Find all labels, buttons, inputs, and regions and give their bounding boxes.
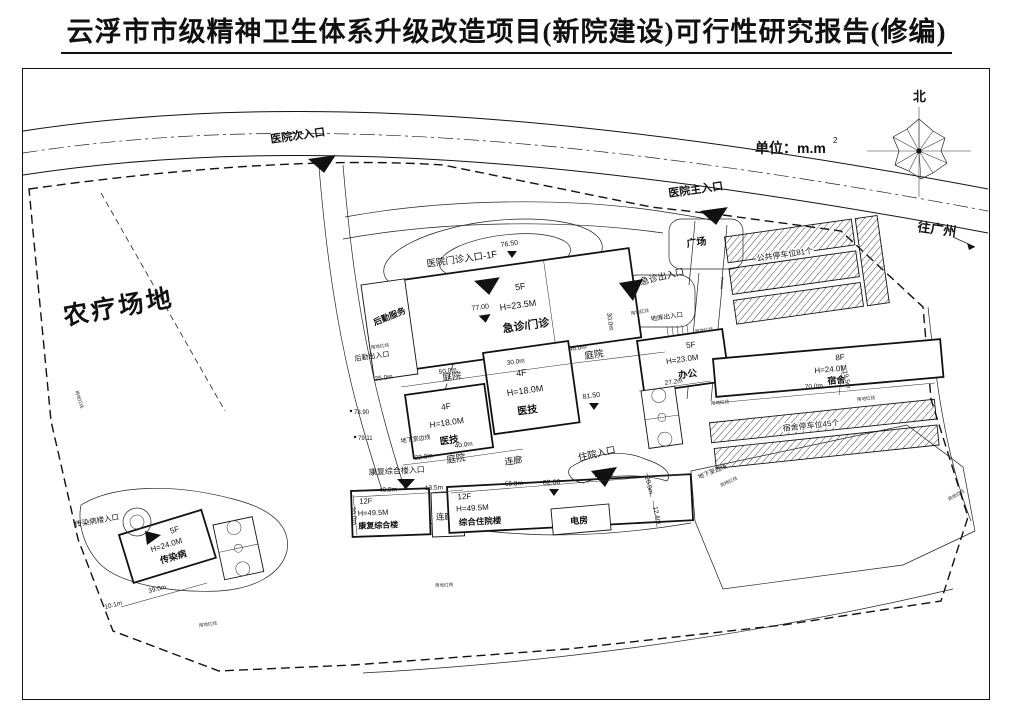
dim-13-5m: 13.5m (425, 484, 443, 492)
building-medtech-left-floors: 4F (440, 401, 451, 412)
unit-note: 单位：m.m 2 (755, 136, 838, 156)
entrance-secondary-arrow (308, 155, 338, 175)
entrance-emergency-label: 急诊出入口 (639, 265, 685, 287)
dim-25m: 25.0m (374, 374, 393, 383)
dim-65-8m: 65.8m (505, 480, 523, 488)
basketball-court-east (641, 386, 683, 448)
elevation-7911: 79.11 (358, 436, 373, 442)
to-guangzhou: 往广州 (917, 219, 975, 250)
plaza-label: 广场 (686, 234, 708, 250)
elevation-7650-marker (507, 251, 517, 258)
building-medtech-right: 4F H=18.0M 医技 (483, 341, 580, 434)
building-rehab-floors: 12F (359, 496, 373, 505)
elevation-7650: 76.50 (500, 240, 518, 249)
elevation-8150-marker (589, 403, 599, 410)
building-dorm-floors: 8F (835, 353, 845, 363)
elevation-7890: 78.90 (354, 410, 370, 416)
entrance-secondary: 医院次入口 (269, 124, 338, 174)
entrance-rehab: 康复综合楼入口 (369, 464, 425, 489)
title-bar: 云浮市市级精神卫生体系升级改造项目(新院建设)可行性研究报告(修编) (0, 10, 1013, 54)
dim-70m: 70.0m (805, 382, 824, 391)
basement-entrance-label: 地库出入口 (650, 310, 683, 323)
north-label: 北 (913, 89, 926, 104)
building-rehab: 12F H=49.5M 康复综合楼 (351, 488, 431, 537)
boundary-note-9: 用地红线 (73, 389, 85, 409)
entrance-secondary-label: 医院次入口 (269, 124, 325, 146)
unit-exponent: 2 (833, 136, 838, 145)
dim-22m: 22.0m (414, 453, 433, 462)
building-rehab-height: H=49.5M (358, 508, 389, 518)
entrance-rehab-arrow (397, 479, 415, 489)
entrance-rehab-label: 康复综合楼入口 (369, 464, 425, 477)
building-medtech-right-floors: 4F (515, 367, 527, 378)
north-compass: 北 (867, 89, 971, 197)
building-rehab-name: 康复综合楼 (358, 519, 398, 530)
dim-39m: 39.0m (148, 584, 167, 595)
corridor-label-2: 连廊 (504, 454, 523, 467)
dim-48-5m: 48.5m (595, 472, 613, 480)
power-room-label: 电房 (570, 514, 589, 527)
compass-center (916, 148, 921, 153)
dorm-parking (710, 399, 940, 468)
dim-20m-a: 20.0m (349, 506, 358, 525)
farm-area-label: 农疗场地 (60, 283, 176, 331)
boundary-note-8: 用地红线 (856, 394, 875, 403)
building-emergency-floors: 5F (514, 281, 526, 292)
boundary-note-6: 用地红线 (198, 619, 218, 629)
main-road (23, 111, 988, 233)
building-dorm: 8F H=24.0M 宿舍 (713, 339, 943, 397)
to-guangzhou-label: 往广州 (917, 219, 958, 239)
unit-label: 单位：m.m (755, 140, 826, 156)
elevation-8200: 82.00 (543, 479, 561, 487)
boundary-note-5: 用地红线 (719, 475, 739, 489)
building-inpatient-height: H=49.5M (456, 503, 489, 514)
entrance-main-label: 医院主入口 (667, 178, 723, 200)
public-parking (725, 216, 890, 325)
building-infectious: 5F H=24.0M 传染病 (119, 510, 216, 583)
building-office-floors: 5F (686, 340, 697, 350)
building-medtech-left: 4F H=18.0M 医技 (405, 384, 493, 459)
dim-10-1m: 10.1m (104, 600, 123, 611)
power-room: 电房 (551, 504, 611, 535)
entrance-outpatient-label: 医院门诊入口-1F (426, 248, 498, 270)
site-plan: 广场 公共停车位81个 宿舍停车位45个 5F H=23.5M 急诊/门诊 77… (23, 69, 988, 698)
entrance-inpatient-label: 住院入口 (577, 444, 617, 464)
entrance-infectious-label: 传染病楼入口 (74, 511, 120, 529)
dim-40m-b: 40.0m (379, 486, 397, 494)
boundary-note-7: 用地红线 (435, 581, 454, 589)
plan-frame: 广场 公共停车位81个 宿舍停车位45个 5F H=23.5M 急诊/门诊 77… (22, 68, 990, 700)
entrance-main-arrow (700, 207, 730, 227)
building-inpatient-floors: 12F (457, 492, 471, 502)
document-title: 云浮市市级精神卫生体系升级改造项目(新院建设)可行性研究报告(修编) (61, 10, 953, 54)
elevation-8150: 81.50 (582, 392, 600, 401)
boundary-note-4: 用地红线 (710, 398, 729, 407)
underground-edge-label-2: 地下室边线 (697, 462, 728, 481)
basketball-court-west (213, 517, 264, 580)
